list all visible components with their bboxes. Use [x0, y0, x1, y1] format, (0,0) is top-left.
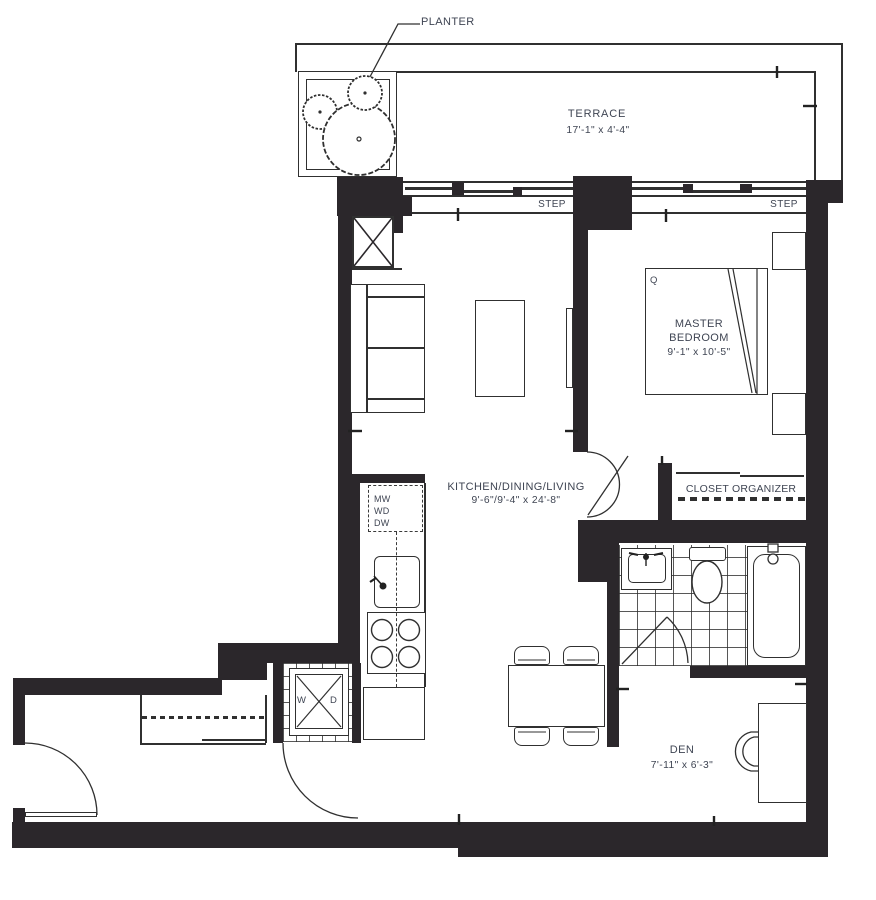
- dining-chair: [514, 646, 550, 665]
- nightstand: [772, 393, 806, 435]
- kitchen-sink: [374, 556, 420, 608]
- foyer-closet-door-track: [202, 739, 266, 741]
- wall-entry-upper: [13, 678, 25, 745]
- window-glazing: [463, 190, 513, 193]
- den-dims: 7'-11" x 6'-3": [651, 760, 713, 772]
- entry-door-swing: [25, 743, 97, 815]
- sofa-cushion: [367, 297, 425, 348]
- window-frame-bottom-left: [403, 195, 573, 197]
- foyer-closet-door-track: [140, 743, 266, 745]
- closet-door-track: [676, 472, 740, 474]
- step-label-right: STEP: [770, 199, 798, 211]
- step-edge-right: [632, 212, 806, 214]
- toilet-tank: [689, 547, 726, 561]
- wall-wd-right: [352, 663, 361, 743]
- wall-right-exterior: [806, 196, 828, 822]
- wall-bottom-right: [458, 822, 828, 857]
- master-bedroom-label-2: BEDROOM: [669, 332, 729, 345]
- floor-plan: PLANTER TERRACE 17'-1" x 4'-4" STEP STEP…: [0, 0, 876, 900]
- wall-pier-center: [573, 176, 632, 230]
- bedroom-door-swing: [587, 452, 620, 517]
- fridge: [363, 687, 425, 740]
- dining-chair: [563, 646, 599, 665]
- nightstand: [772, 232, 806, 270]
- master-bedroom-label-1: MASTER: [675, 318, 723, 331]
- washer-dryer-label: WD: [374, 506, 389, 518]
- sofa-back: [350, 284, 367, 413]
- foyer-closet-side: [140, 695, 142, 743]
- wall-bath-bottom: [690, 666, 807, 678]
- terrace-outer-edge-left: [295, 43, 297, 72]
- terrace-label: TERRACE: [568, 108, 626, 121]
- microwave-label: MW: [374, 494, 390, 506]
- den-chair: [735, 732, 759, 771]
- wd-closet-door-swing: [283, 743, 358, 818]
- terrace-inner-edge-v: [814, 71, 816, 181]
- planter-label: PLANTER: [421, 16, 475, 29]
- window-glazing: [752, 187, 806, 190]
- foyer-closet-side: [265, 695, 267, 743]
- entry-door-leaf: [25, 812, 97, 817]
- sofa-armrest: [367, 399, 425, 413]
- plan-linework-overlay: [0, 0, 876, 900]
- coffee-table: [475, 300, 525, 397]
- wall-mullion: [513, 187, 522, 196]
- sofa-cushion: [367, 348, 425, 399]
- terrace-inner-edge-h: [397, 71, 816, 73]
- wall-left-lower: [338, 475, 360, 645]
- sofa-armrest: [367, 284, 425, 297]
- wall-foyer-chunk: [218, 663, 267, 680]
- shaft-bottom-line: [352, 268, 402, 270]
- terrace-outer-edge-right: [841, 43, 843, 183]
- wall-mullion: [452, 182, 464, 195]
- window-glazing: [693, 190, 740, 193]
- kitchen-upper-cabinet-dash: [396, 532, 397, 687]
- master-bedroom-dims: 9'-1" x 10'-5": [667, 347, 730, 359]
- bathroom-sink: [628, 554, 666, 583]
- dining-table: [508, 665, 605, 727]
- wall-mullion: [740, 184, 752, 193]
- dining-chair: [514, 727, 550, 746]
- wall-bottom-left: [12, 822, 458, 848]
- dining-chair: [563, 727, 599, 746]
- window-glazing: [632, 187, 683, 190]
- den-label: DEN: [670, 744, 694, 757]
- closet-organizer-label: CLOSET ORGANIZER: [686, 483, 796, 496]
- step-label-left: STEP: [538, 199, 566, 211]
- closet-door-track: [740, 475, 804, 477]
- wall-wd-left: [273, 663, 283, 743]
- planter-box-inner: [306, 79, 390, 170]
- bedroom-door-leaf: [588, 456, 628, 515]
- window-glazing: [405, 187, 453, 190]
- wall-bath-left: [607, 543, 619, 747]
- terrace-dims: 17'-1" x 4'-4": [566, 125, 629, 137]
- window-frame-top-left: [403, 181, 573, 183]
- wall-foyer-top: [13, 678, 222, 695]
- window-frame-top-right: [632, 181, 806, 183]
- wall-kitchen-foyer-band: [218, 643, 360, 663]
- kitchen-dining-living-dims: 9'-6"/9'-4" x 24'-8": [472, 495, 561, 507]
- terrace-outer-edge-top: [295, 43, 843, 45]
- wall-living-bedroom: [573, 230, 588, 452]
- wall-mullion: [683, 184, 693, 193]
- wall-closet-left: [658, 463, 672, 523]
- wall-closet-bottom-band: [578, 520, 807, 543]
- bathtub-inner: [753, 554, 800, 658]
- den-desk: [758, 703, 807, 803]
- wall-pier-planter: [337, 177, 403, 198]
- window-frame-bottom-right: [632, 195, 806, 197]
- washer-letter: W: [297, 695, 306, 707]
- tv-wall-mounted: [566, 308, 573, 388]
- wall-shaft-stub: [393, 216, 403, 233]
- dryer-letter: D: [330, 695, 337, 707]
- closet-rod-dashed: [678, 497, 805, 501]
- foyer-closet-rod-dashed: [142, 716, 265, 719]
- dishwasher-label: DW: [374, 518, 389, 530]
- shaft-box: [352, 216, 394, 268]
- window-glazing: [522, 187, 573, 190]
- step-edge-left: [403, 212, 573, 214]
- kitchen-dining-living-label: KITCHEN/DINING/LIVING: [447, 481, 584, 494]
- bed-size-code: Q: [650, 275, 658, 286]
